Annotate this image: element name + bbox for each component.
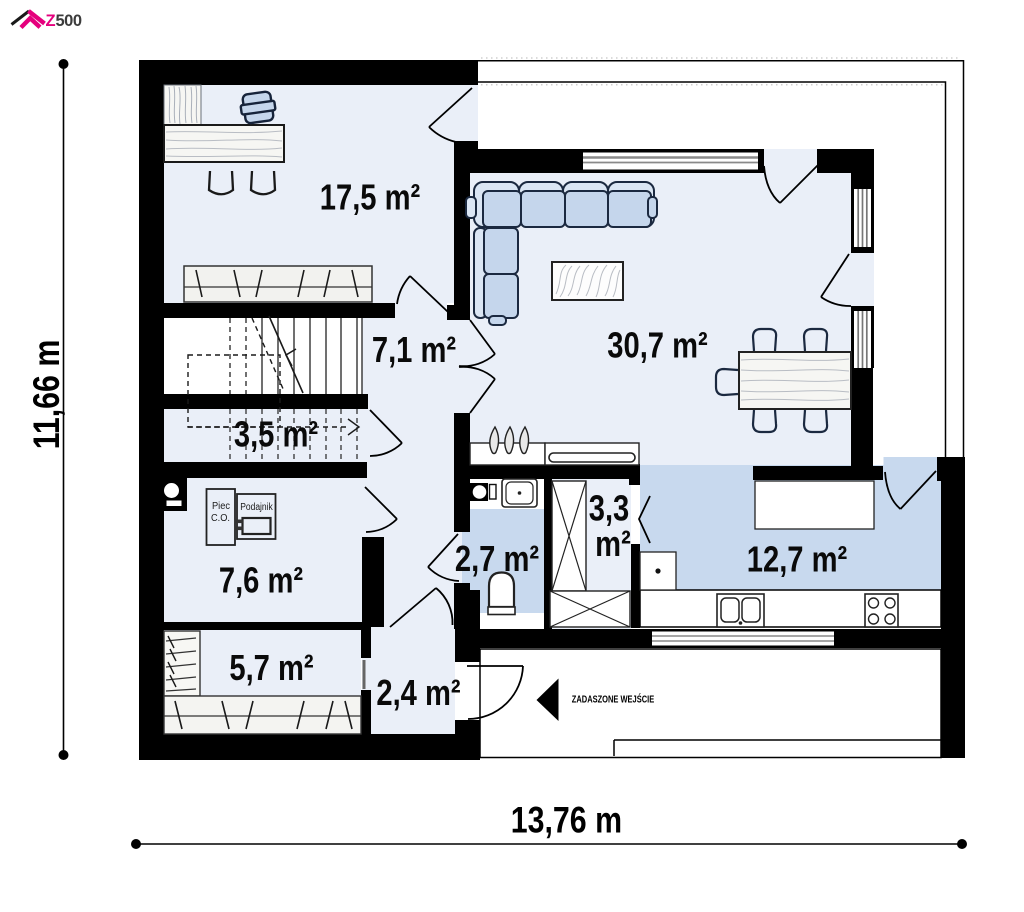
svg-text:C.O.: C.O. [211, 513, 230, 525]
svg-text:Podajnik: Podajnik [240, 501, 273, 512]
svg-text:500: 500 [56, 12, 82, 30]
svg-text:Piec: Piec [212, 501, 230, 513]
svg-text:m²: m² [595, 523, 631, 564]
svg-text:2,7 m²: 2,7 m² [455, 538, 539, 579]
svg-text:7,6 m²: 7,6 m² [219, 560, 303, 601]
svg-text:17,5 m²: 17,5 m² [320, 176, 421, 217]
svg-text:12,7 m²: 12,7 m² [747, 538, 848, 579]
svg-text:11,66 m: 11,66 m [26, 340, 68, 450]
svg-text:2,4 m²: 2,4 m² [376, 672, 460, 713]
svg-text:13,76 m: 13,76 m [511, 800, 622, 842]
svg-text:ZADASZONE WEJŚCIE: ZADASZONE WEJŚCIE [572, 692, 655, 704]
svg-text:30,7 m²: 30,7 m² [607, 325, 708, 366]
svg-text:Z: Z [46, 12, 56, 30]
svg-text:3,5 m²: 3,5 m² [234, 414, 318, 455]
svg-text:7,1 m²: 7,1 m² [372, 329, 456, 370]
svg-text:5,7 m²: 5,7 m² [229, 647, 313, 688]
